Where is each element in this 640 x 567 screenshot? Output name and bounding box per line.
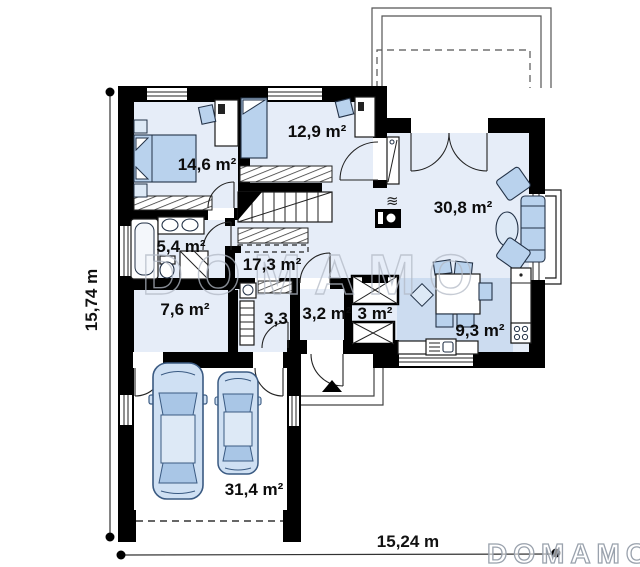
- car-large: [149, 363, 207, 499]
- fireplace: [375, 209, 401, 228]
- door-opening-terrace: [411, 118, 488, 133]
- window-garage-right: [289, 396, 299, 426]
- chair: [436, 314, 453, 327]
- label-bedroom1: 14,6 m²: [178, 155, 237, 174]
- label-bathroom: 5,4 m²: [156, 237, 205, 256]
- door-opening-hall-garage: [253, 352, 283, 368]
- garage-door-jamb-right: [283, 510, 301, 542]
- door-opening-living: [373, 138, 387, 180]
- window-kitchen-bottom: [399, 354, 473, 366]
- nightstand: [134, 184, 147, 197]
- desk-chair: [335, 98, 353, 117]
- closet-lower: [352, 322, 394, 344]
- width-dimension-label: 15,24 m: [377, 532, 439, 551]
- wardrobe-hall: [238, 228, 308, 243]
- label-closet: 3 m²: [358, 304, 393, 323]
- window-bathroom-left: [120, 226, 132, 276]
- radiator-symbol: ≋: [386, 193, 399, 210]
- label-utility: 7,6 m²: [160, 300, 209, 319]
- wardrobe-bedroom2: [240, 166, 332, 182]
- stairs: [238, 192, 332, 222]
- nightstand: [134, 120, 147, 133]
- desk-chair: [198, 105, 215, 125]
- floor-plan-drawing: ≋: [0, 0, 640, 567]
- dimension-height: 15,74 m: [82, 88, 115, 542]
- window-bedroom1-top: [147, 88, 187, 100]
- watermark-corner: DOMAMO: [487, 538, 640, 567]
- label-storage: 3,2 m²: [302, 304, 351, 323]
- window-garage-left: [120, 395, 132, 425]
- wardrobe-bedroom1: [134, 196, 212, 210]
- terrace: [372, 8, 551, 88]
- entrance-steps: [301, 348, 383, 405]
- floor-plan-canvas: ≋: [0, 0, 640, 567]
- window-bedroom2-top: [268, 88, 322, 100]
- stair-wall: [238, 183, 322, 192]
- label-hallway: 17,3 m²: [243, 255, 302, 274]
- garage-door-jamb-left: [118, 510, 136, 542]
- label-kitchen: 9,3 m²: [455, 321, 504, 340]
- label-bedroom2: 12,9 m²: [288, 122, 347, 141]
- label-wc: 3,3: [264, 309, 288, 328]
- stove: [511, 323, 531, 343]
- height-dimension-label: 15,74 m: [82, 269, 101, 331]
- kitchen-sink: [426, 339, 456, 355]
- label-garage: 31,4 m²: [225, 480, 284, 499]
- label-living: 30,8 m²: [434, 198, 493, 217]
- car-small: [215, 372, 261, 474]
